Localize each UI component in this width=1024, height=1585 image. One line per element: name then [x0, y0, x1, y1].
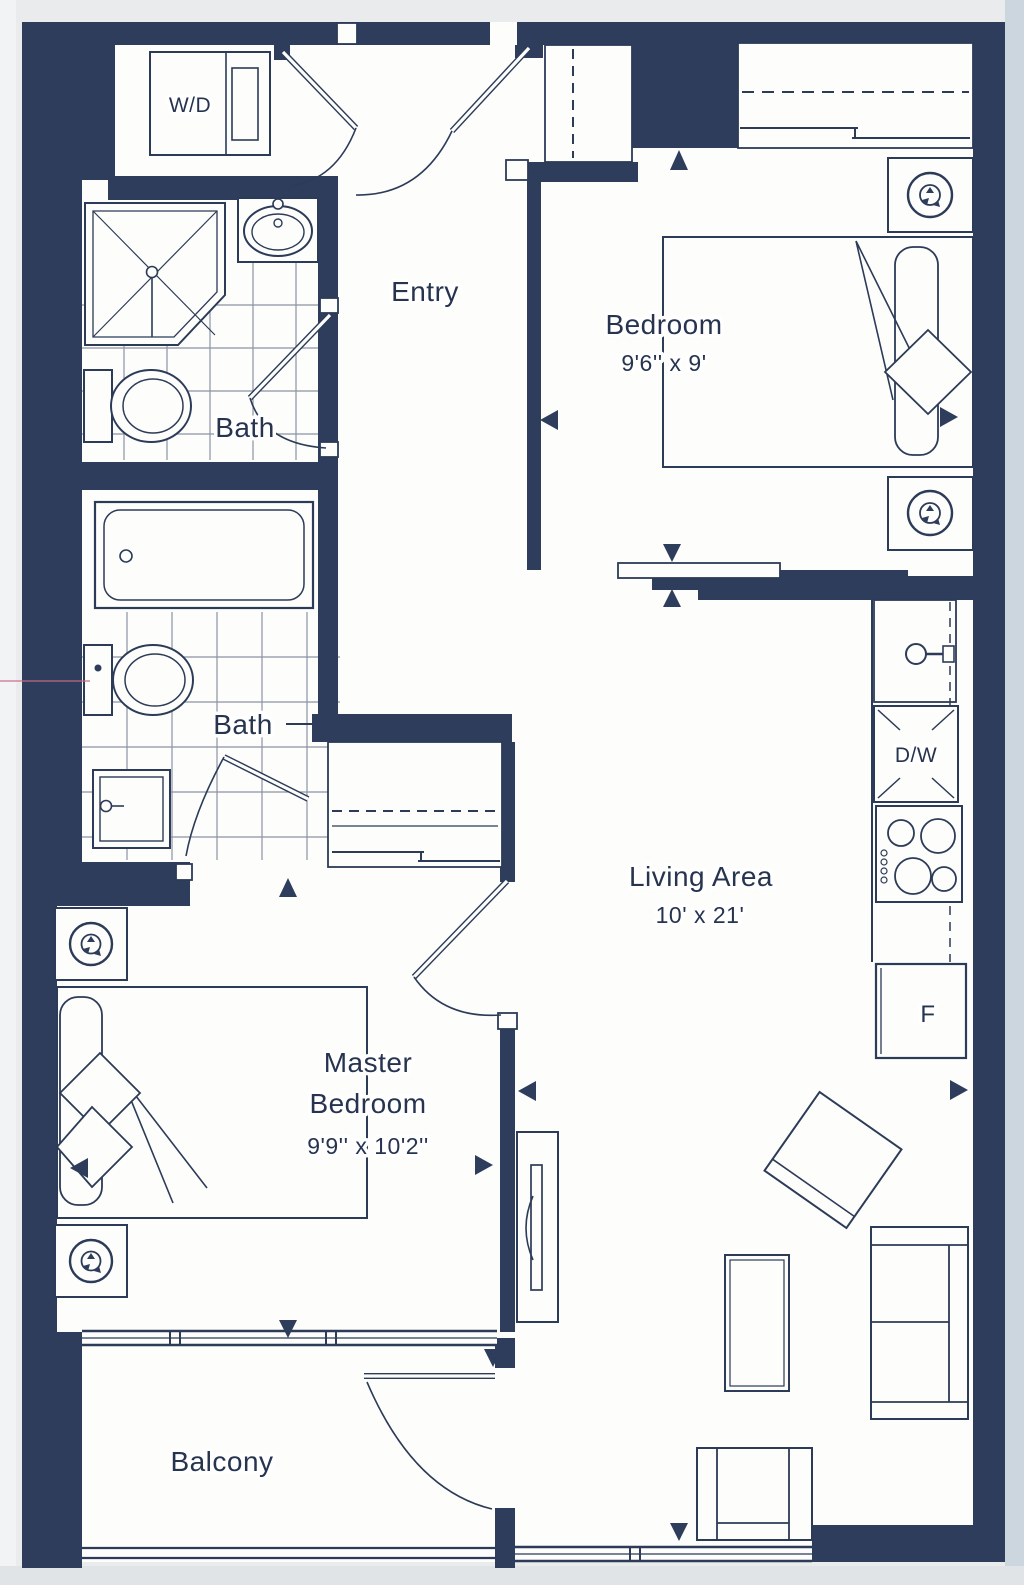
wd-label: W/D [169, 94, 211, 117]
bedroom-closet [738, 43, 973, 148]
floorplan-page: D/W F [0, 0, 1024, 1585]
master-dim: 9'9'' x 10'2'' [307, 1133, 429, 1159]
bedroom-label: Bedroom [605, 309, 722, 340]
upper-bath-sink [238, 198, 318, 262]
bedroom-nightstand-lower [888, 477, 973, 550]
master-nightstand-lower [55, 1225, 127, 1297]
living-window [515, 1546, 812, 1562]
bathtub [95, 502, 313, 608]
dishwasher-label: D/W [895, 744, 937, 767]
shower [85, 203, 225, 345]
living-label: Living Area [629, 861, 773, 892]
bedroom-nightstand-upper [888, 158, 973, 232]
upper-bath-toilet [84, 370, 191, 442]
armchair [697, 1448, 812, 1540]
master-nightstand-upper [55, 908, 127, 980]
tv-console [517, 1132, 558, 1322]
fridge: F [876, 964, 966, 1058]
entry-closet [545, 45, 632, 162]
master-label-line1: Master [324, 1047, 413, 1078]
living-dim: 10' x 21' [656, 902, 745, 928]
cooktop [876, 806, 962, 902]
lower-bath-toilet [84, 645, 193, 715]
dishwasher: D/W [874, 706, 958, 802]
master-label-line2: Bedroom [309, 1088, 426, 1119]
entry-label: Entry [391, 276, 459, 307]
master-closet [328, 742, 502, 867]
sofa [871, 1227, 968, 1419]
bedroom-sliding-door [618, 563, 780, 578]
fridge-label: F [920, 1001, 935, 1028]
lower-bath-sink [93, 770, 170, 848]
balcony-label: Balcony [170, 1446, 273, 1477]
coffee-table [725, 1255, 789, 1391]
lower-bath-label: Bath [213, 709, 273, 740]
bedroom-dim: 9'6'' x 9' [621, 350, 706, 376]
bedroom-bed [663, 237, 973, 467]
upper-bath-label: Bath [215, 412, 275, 443]
floorplan-drawing: D/W F [0, 0, 1024, 1585]
